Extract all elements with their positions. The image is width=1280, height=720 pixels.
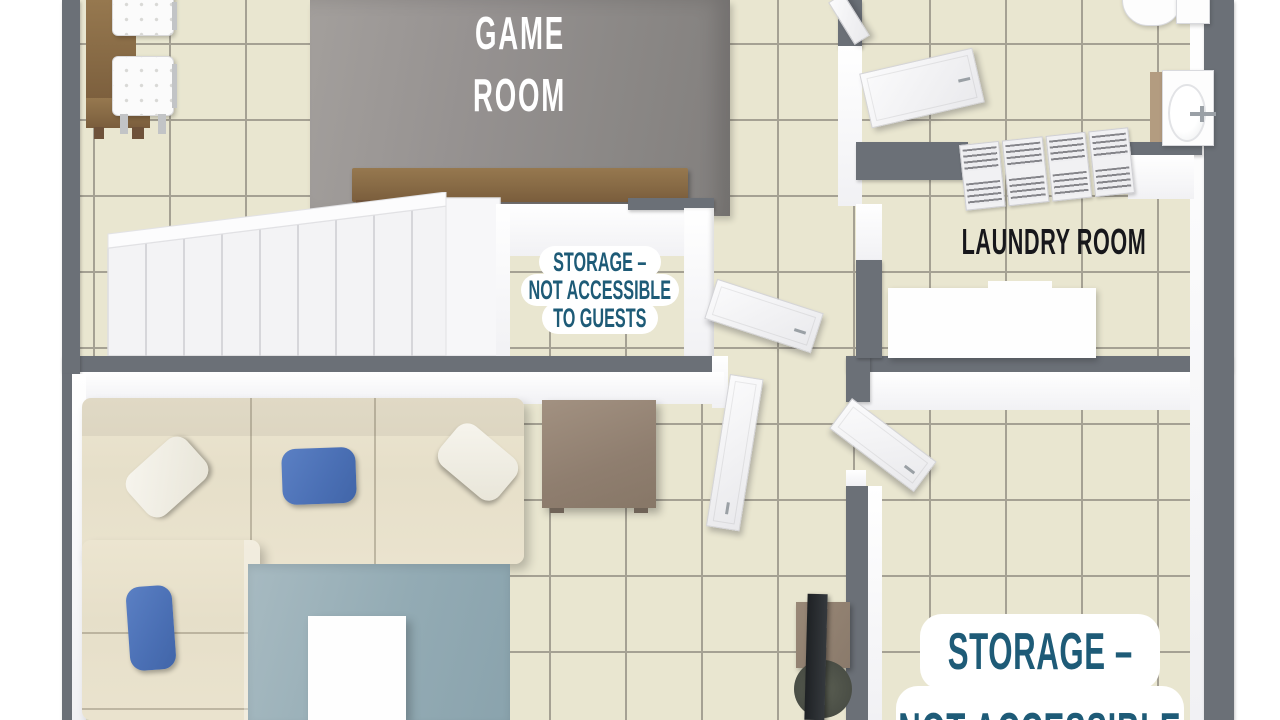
chair-frame [172,64,177,108]
blue-pillow [281,447,357,506]
center-top-wall-face [838,46,862,206]
louver-panel [959,141,1006,211]
louver-slats [1095,166,1131,191]
main-wall-left [62,356,714,372]
laundry-counter-bump [988,281,1052,293]
laundry-left-wall-face [856,204,882,262]
chair-leg [120,114,128,134]
louver-slats [966,180,1002,205]
badge-line: STORAGE – [920,614,1160,690]
divider-wall-face [868,486,882,720]
storage-room-left-wall [496,204,510,360]
storage-br-top-wall-face [856,372,1200,410]
game-room-label-line2: ROOM [442,72,597,118]
badge-line: TO GUESTS [542,302,658,334]
laundry-wall-face-right [1128,155,1194,199]
toilet-tank [1176,0,1210,24]
cabinet-foot [634,508,648,513]
staircase [104,192,504,358]
tv-screen [804,594,827,720]
side-cabinet [542,400,656,508]
laundry-room-label-text: LAUNDRY ROOM [962,224,1147,260]
desk-leg [94,127,104,139]
laundry-top-wall [856,142,968,180]
left-outer-wall-lower [62,374,72,720]
storage-bottom-right-badge: STORAGE – NOT ACCESSIBLE [895,618,1185,720]
wall-end-cap [846,470,866,486]
coffee-table [308,616,406,720]
game-room-label-line1: GAME [445,10,595,56]
wall-junction [846,356,870,402]
chair-leg [158,114,166,134]
desk-chair [112,56,174,116]
left-outer-wall [62,0,80,374]
storage-center-text2: NOT ACCESSIBLE [529,275,672,306]
louver-slats [1009,175,1045,200]
game-room-label-text1: GAME [475,10,565,56]
main-wall-right [846,356,1232,372]
louver-panel [1045,132,1092,202]
storage-center-text1: STORAGE – [553,247,646,278]
cabinet-foot [550,508,564,513]
storage-center-text3: TO GUESTS [553,303,646,334]
sofa-seam [82,708,260,710]
desk-leg [132,127,144,139]
faucet-handle [1200,106,1204,122]
storage-br-text1: STORAGE – [947,622,1132,682]
floor-plan: GAME ROOM [0,0,1280,720]
louver-slats [1052,171,1088,196]
badge-line: NOT ACCESSIBLE [896,686,1184,720]
blue-pillow [125,584,177,671]
louver-slats [1006,142,1042,167]
louver-panel [1002,136,1049,206]
laundry-counter [888,288,1096,358]
desk-chair [112,0,174,36]
sofa-seam [374,398,376,564]
game-room-label-text2: ROOM [473,72,566,118]
storage-room-right-wall [684,208,714,358]
storage-center-badge: STORAGE – NOT ACCESSIBLE TO GUESTS [516,250,684,330]
louver-slats [963,146,999,171]
louver-slats [1092,133,1128,158]
laundry-room-label: LAUNDRY ROOM [900,224,1200,260]
laundry-left-wall [856,260,882,358]
louver-slats [1049,137,1085,162]
chair-frame [172,2,177,30]
louver-panel [1088,127,1135,197]
storage-br-text2: NOT ACCESSIBLE [899,702,1182,720]
